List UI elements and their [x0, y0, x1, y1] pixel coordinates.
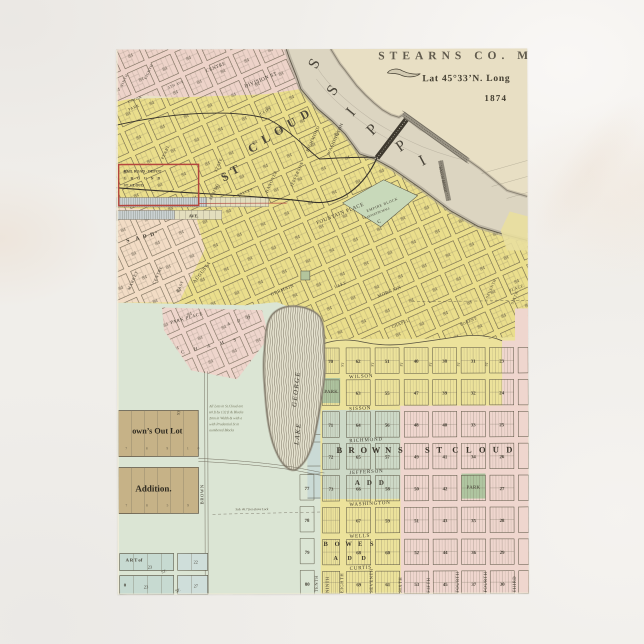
svg-text:7 8 5 9: 7 8 5 9	[126, 503, 198, 507]
svg-text:D: D	[361, 555, 366, 561]
svg-text:40: 40	[442, 423, 447, 428]
svg-text:61: 61	[385, 583, 390, 588]
svg-text:31: 31	[471, 359, 476, 364]
svg-text:FIFTH: FIFTH	[426, 577, 431, 592]
svg-text:7 8 9 10: 7 8 9 10	[125, 446, 208, 450]
svg-text:51: 51	[385, 359, 390, 364]
svg-text:FOURTH: FOURTH	[455, 571, 460, 592]
svg-text:35: 35	[471, 519, 476, 524]
svg-text:L: L	[466, 444, 472, 454]
svg-text:55: 55	[385, 391, 390, 396]
svg-text:51: 51	[414, 519, 419, 524]
svg-text:62: 62	[356, 359, 361, 364]
svg-text:42: 42	[443, 487, 448, 492]
svg-text:70: 70	[328, 359, 333, 364]
svg-text:D: D	[347, 555, 352, 561]
svg-text:33: 33	[471, 423, 476, 428]
svg-text:numbered Blocks: numbered Blocks	[209, 428, 234, 432]
svg-text:D: D	[379, 478, 384, 486]
svg-text:BROWN: BROWN	[199, 484, 204, 504]
svg-text:THIRD: THIRD	[512, 575, 517, 592]
svg-text:R: R	[348, 444, 355, 454]
svg-text:47: 47	[414, 391, 419, 396]
svg-text:Sub. 46.7 feet above Lock: Sub. 46.7 feet above Lock	[236, 507, 269, 511]
svg-text:STEARNS CO. M: STEARNS CO. M	[378, 49, 529, 61]
svg-text:23: 23	[499, 359, 504, 364]
svg-text:C: C	[452, 444, 458, 454]
svg-text:N: N	[385, 444, 392, 454]
svg-text:63: 63	[356, 391, 361, 396]
svg-text:38: 38	[442, 359, 447, 364]
svg-text:1874: 1874	[484, 92, 507, 102]
svg-text:50: 50	[414, 487, 419, 492]
svg-text:Lat 45°33’N. Long: Lat 45°33’N. Long	[422, 72, 510, 83]
svg-text:U: U	[493, 444, 499, 454]
svg-text:B: B	[323, 540, 328, 547]
svg-text:67: 67	[356, 519, 361, 524]
svg-text:37: 37	[471, 582, 476, 587]
svg-text:B: B	[337, 444, 343, 454]
svg-text:FOURTH: FOURTH	[483, 571, 488, 592]
svg-text:22: 22	[194, 559, 198, 564]
svg-text:56: 56	[385, 423, 390, 428]
svg-text:52: 52	[414, 551, 419, 556]
svg-text:S: S	[370, 540, 374, 547]
svg-text:PARK: PARK	[324, 389, 338, 394]
svg-text:72: 72	[328, 455, 333, 460]
svg-text:77: 77	[305, 487, 310, 492]
svg-text:G R O U N D: G R O U N D	[124, 176, 162, 180]
svg-text:W: W	[345, 540, 352, 547]
svg-text:57: 57	[385, 455, 390, 460]
svg-text:34: 34	[471, 455, 476, 460]
svg-text:45: 45	[443, 582, 448, 587]
svg-text:69: 69	[356, 583, 361, 588]
svg-text:SIXTH: SIXTH	[398, 576, 403, 592]
svg-text:S: S	[398, 444, 403, 454]
svg-text:A: A	[355, 478, 360, 486]
svg-text:40: 40	[414, 359, 419, 364]
svg-text:27: 27	[194, 583, 198, 588]
svg-text:60 ft by 132 ft & Blocks: 60 ft by 132 ft & Blocks	[209, 410, 244, 414]
svg-text:27: 27	[500, 487, 505, 492]
svg-text:A R T of: A R T of	[126, 557, 143, 562]
svg-text:EIGHTH: EIGHTH	[339, 572, 344, 592]
svg-text:O: O	[479, 444, 486, 454]
svg-text:WELLS: WELLS	[349, 533, 370, 539]
svg-text:SEVENTH: SEVENTH	[369, 568, 374, 593]
svg-text:25: 25	[499, 423, 504, 428]
svg-text:with Prudential St in: with Prudential St in	[209, 422, 239, 426]
svg-text:41: 41	[442, 455, 447, 460]
svg-text:TENTH: TENTH	[314, 574, 319, 591]
svg-text:29: 29	[500, 550, 505, 555]
svg-text:own’s Out Lot: own’s Out Lot	[132, 426, 182, 435]
svg-text:39: 39	[442, 391, 447, 396]
svg-text:28: 28	[500, 518, 505, 523]
svg-text:48: 48	[414, 423, 419, 428]
svg-text:PARK: PARK	[467, 485, 481, 490]
svg-text:23: 23	[144, 584, 149, 589]
svg-text:A: A	[333, 555, 338, 561]
svg-text:30: 30	[500, 582, 505, 587]
svg-text:26: 26	[499, 455, 504, 460]
svg-text:O: O	[360, 444, 367, 454]
svg-text:24: 24	[499, 391, 504, 396]
svg-text:D: D	[506, 444, 512, 454]
svg-text:65: 65	[356, 455, 361, 460]
svg-text:66: 66	[356, 487, 361, 492]
svg-text:W: W	[372, 444, 381, 454]
svg-text:T: T	[437, 444, 443, 454]
svg-text:80: 80	[305, 582, 310, 587]
svg-text:58: 58	[385, 487, 390, 492]
svg-text:NINTH: NINTH	[325, 576, 330, 593]
svg-text:WILSON: WILSON	[349, 374, 373, 380]
svg-text:AVE.: AVE.	[189, 213, 199, 218]
svg-text:71: 71	[328, 423, 333, 428]
svg-text:59: 59	[385, 519, 390, 524]
svg-text:43: 43	[443, 519, 448, 524]
svg-text:44: 44	[443, 551, 448, 556]
svg-text:79: 79	[305, 550, 310, 555]
svg-text:60: 60	[385, 551, 390, 556]
svg-text:73: 73	[329, 487, 334, 492]
svg-text:RAIL ROAD · DEPOT: RAIL ROAD · DEPOT	[124, 169, 162, 173]
svg-text:78: 78	[305, 518, 310, 523]
svg-text:53: 53	[414, 583, 419, 588]
svg-text:E: E	[358, 540, 362, 547]
svg-text:49: 49	[414, 455, 419, 460]
svg-text:Zmn in Width & with a: Zmn in Width & with a	[209, 416, 242, 420]
svg-text:All Lots in St.Cloud are: All Lots in St.Cloud are	[208, 404, 243, 408]
svg-text:32: 32	[471, 391, 476, 396]
svg-text:64: 64	[356, 423, 361, 428]
svg-text:ST CLOUD: ST CLOUD	[124, 183, 145, 187]
svg-text:SISSON: SISSON	[349, 406, 371, 412]
svg-text:O: O	[335, 540, 340, 547]
svg-text:36: 36	[471, 550, 476, 555]
svg-text:S: S	[425, 444, 430, 454]
svg-text:Addition.: Addition.	[135, 483, 171, 493]
svg-text:D: D	[367, 478, 372, 486]
